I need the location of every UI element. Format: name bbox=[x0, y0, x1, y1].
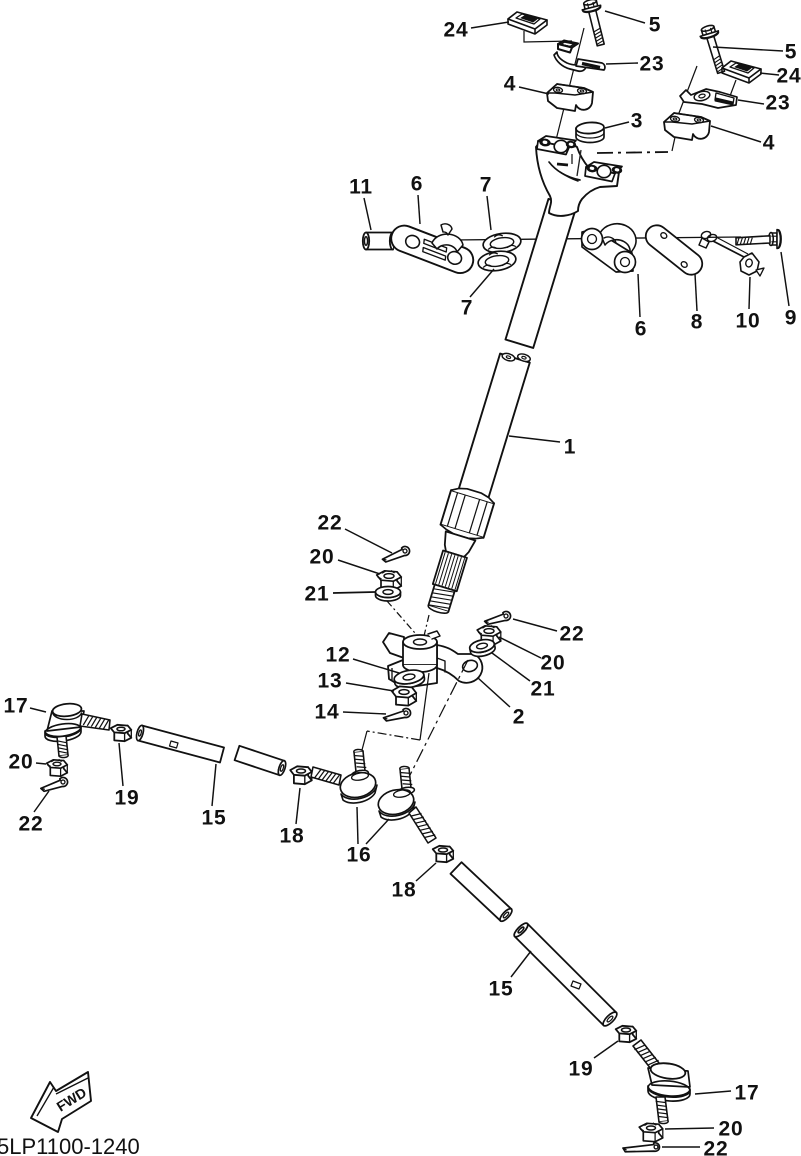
svg-text:19: 19 bbox=[569, 1058, 594, 1081]
svg-text:20: 20 bbox=[310, 546, 335, 569]
svg-text:20: 20 bbox=[541, 652, 566, 675]
svg-text:24: 24 bbox=[444, 19, 469, 42]
svg-text:16: 16 bbox=[347, 844, 372, 867]
svg-text:5LP1100-1240: 5LP1100-1240 bbox=[0, 1134, 140, 1156]
svg-text:5: 5 bbox=[785, 41, 797, 64]
svg-text:17: 17 bbox=[735, 1082, 760, 1105]
svg-text:2: 2 bbox=[513, 706, 525, 729]
svg-text:18: 18 bbox=[280, 825, 305, 848]
svg-text:17: 17 bbox=[4, 695, 29, 718]
svg-text:15: 15 bbox=[202, 807, 227, 830]
svg-text:14: 14 bbox=[315, 701, 340, 724]
svg-text:7: 7 bbox=[461, 297, 473, 320]
svg-text:6: 6 bbox=[411, 173, 423, 196]
svg-text:19: 19 bbox=[115, 787, 140, 810]
svg-text:8: 8 bbox=[691, 311, 703, 334]
svg-text:11: 11 bbox=[349, 176, 373, 199]
svg-text:24: 24 bbox=[777, 65, 801, 88]
svg-text:22: 22 bbox=[560, 623, 585, 646]
svg-text:7: 7 bbox=[480, 174, 492, 197]
svg-text:4: 4 bbox=[763, 132, 775, 155]
svg-text:1: 1 bbox=[564, 436, 576, 459]
svg-text:15: 15 bbox=[489, 978, 514, 1001]
svg-text:10: 10 bbox=[736, 310, 761, 333]
svg-text:23: 23 bbox=[640, 53, 665, 76]
svg-text:6: 6 bbox=[635, 318, 647, 341]
svg-text:13: 13 bbox=[318, 670, 343, 693]
svg-text:5: 5 bbox=[649, 14, 661, 37]
svg-text:22: 22 bbox=[704, 1138, 729, 1156]
svg-text:22: 22 bbox=[318, 512, 343, 535]
svg-text:21: 21 bbox=[305, 583, 330, 606]
svg-text:12: 12 bbox=[326, 644, 351, 667]
svg-text:21: 21 bbox=[531, 678, 556, 701]
svg-text:23: 23 bbox=[766, 92, 791, 115]
svg-text:20: 20 bbox=[9, 751, 34, 774]
svg-text:4: 4 bbox=[504, 73, 516, 96]
svg-text:9: 9 bbox=[785, 307, 797, 330]
svg-text:18: 18 bbox=[392, 879, 417, 902]
svg-text:3: 3 bbox=[631, 110, 643, 133]
svg-text:22: 22 bbox=[19, 813, 44, 836]
